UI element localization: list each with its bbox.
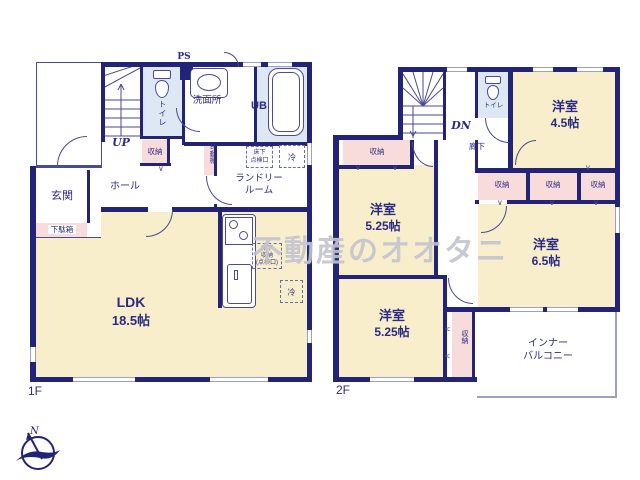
room-45-label: 洋室4.5帖 — [534, 99, 596, 132]
wall — [507, 200, 620, 204]
toilet-2f-door-arc — [485, 118, 509, 143]
wall — [140, 136, 185, 139]
hall-label: ホール — [108, 181, 142, 194]
closet-3-label: 収納 — [587, 180, 609, 189]
window — [577, 67, 603, 72]
wall — [472, 310, 475, 377]
floor1-label: 1F — [28, 384, 54, 399]
underfloor-hatch-label1: 床下 — [253, 150, 265, 156]
window — [510, 307, 543, 312]
wall — [333, 135, 402, 140]
fridge-space: 冷 — [279, 145, 305, 168]
door-mark: ∨ — [497, 199, 503, 207]
wall — [101, 207, 148, 212]
up-label: UP — [106, 136, 136, 150]
window — [73, 377, 135, 382]
bath-label: UB — [250, 100, 268, 114]
dn-label: DN — [448, 119, 474, 133]
room-65-label: 洋室6.5帖 — [515, 237, 577, 270]
stairs-2f — [403, 72, 443, 140]
stairs-1f — [103, 62, 140, 142]
room-525a-door-arc — [412, 142, 433, 167]
wall — [101, 62, 105, 142]
wall — [443, 67, 446, 140]
closet-2-label: 収納 — [542, 180, 564, 189]
window — [447, 67, 467, 72]
wall — [475, 200, 479, 204]
wall — [475, 168, 620, 173]
shoe-cabinet-label: 下駄箱 — [48, 225, 76, 234]
window — [268, 62, 292, 67]
compass: N — [12, 425, 64, 477]
window — [30, 347, 36, 362]
wall — [339, 165, 414, 169]
wall — [398, 67, 403, 140]
wall — [87, 170, 90, 223]
closet-1-label: 収納 — [491, 180, 513, 189]
wall — [526, 172, 530, 200]
window — [547, 307, 578, 312]
door-mark: ∨ — [585, 164, 591, 172]
window — [307, 330, 312, 343]
washroom-label: 洗面所 — [190, 95, 224, 107]
kitchen-sink-icon — [227, 264, 252, 304]
door-mark: ∨ — [355, 164, 361, 172]
stove-burner-icon — [229, 220, 238, 229]
wall — [167, 138, 170, 166]
door-mark: ∨ — [549, 199, 555, 207]
door-mark: ∨ — [158, 165, 164, 173]
storage-upper-2f-label: 収納 — [366, 147, 388, 156]
wall — [615, 67, 620, 312]
inner-balcony-label: インナーバルコニー — [515, 338, 581, 363]
wall — [339, 275, 443, 279]
entrance-label: 玄関 — [45, 190, 79, 204]
toilet-tank-icon — [153, 70, 171, 79]
toilet-1f-label: トイレ — [157, 100, 168, 127]
bathtub-inner-icon — [272, 72, 300, 132]
wall — [475, 67, 478, 118]
ps-label: PS — [173, 52, 195, 63]
wall — [172, 207, 307, 212]
window — [307, 143, 312, 165]
stove-burner-icon — [239, 231, 248, 240]
back-door-arc — [224, 52, 239, 67]
underfloor-hatch: 床下 点検口 — [246, 146, 273, 168]
wall-thin — [36, 166, 102, 168]
toilet-2f-label: トイレ — [481, 102, 506, 110]
room-525b-door-arc — [448, 278, 473, 304]
toilet-tank-icon — [485, 76, 501, 84]
movable-shelf-label: 可動棚 — [206, 144, 216, 164]
window — [210, 377, 268, 382]
laundry-label: ランドリールーム — [228, 173, 290, 197]
underfloor-hatch-label2: 点検口 — [250, 158, 268, 164]
room-525b-label: 洋室5.25帖 — [361, 308, 423, 341]
compass-north-label: N — [29, 426, 40, 437]
window — [370, 377, 414, 382]
hall-closet-label: 収納 — [145, 147, 165, 156]
watermark: 不動産のオオタニ — [252, 226, 508, 270]
window — [615, 207, 620, 233]
door-mark: ∨ — [443, 326, 451, 332]
door-mark: ∨ — [443, 353, 451, 359]
fridge-space-2: 冷 — [280, 280, 303, 303]
window — [243, 62, 261, 67]
wall — [577, 172, 581, 200]
faucet-icon — [234, 270, 238, 280]
door-mark: ∨ — [392, 164, 398, 172]
corridor-label: 廊下 — [466, 142, 488, 152]
door-mark: ∨ — [593, 199, 599, 207]
window — [533, 67, 553, 72]
fridge-label: 冷 — [280, 153, 304, 163]
ldk-label: LDK18.5帖 — [100, 294, 162, 329]
floor2-label: 2F — [336, 383, 362, 398]
fridge2-label: 冷 — [281, 288, 302, 298]
floor-plan: 床下 点検口 冷 床下 収納 (点検口) 冷 PS UP トイレ 洗面所 UB … — [0, 0, 640, 480]
washbasin-bowl-icon — [197, 74, 221, 91]
wall — [140, 62, 143, 138]
wall-thin — [36, 237, 101, 238]
storage-vertical-2f-label: 収納 — [459, 330, 469, 344]
